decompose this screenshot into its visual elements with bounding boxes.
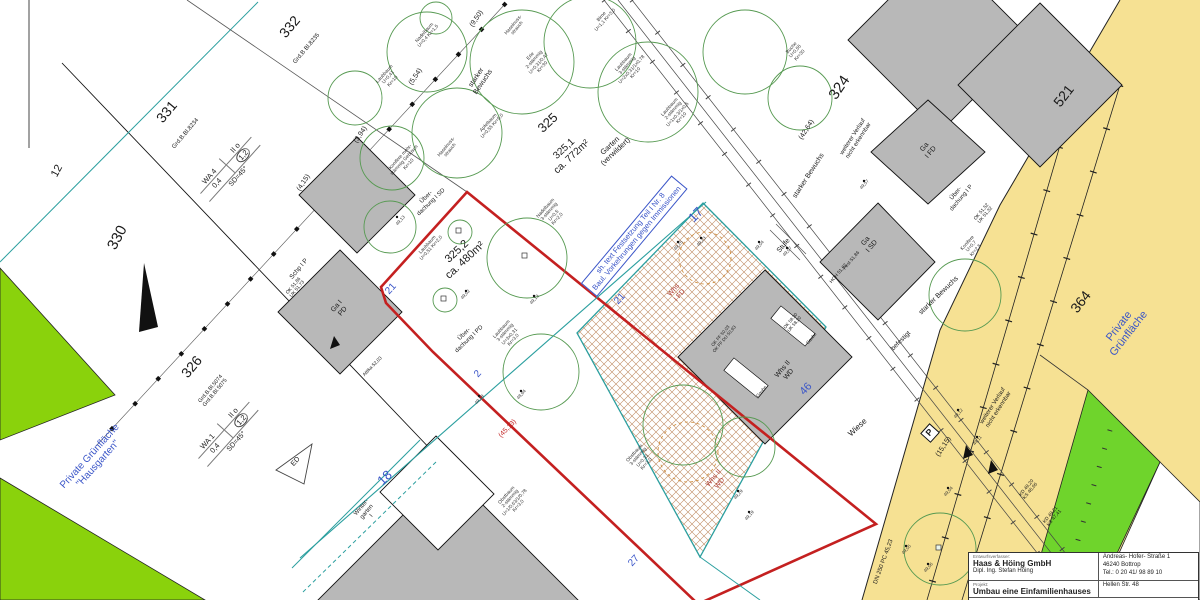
plot-number-2: 2 xyxy=(472,368,484,379)
elev-49-19-a: 49,19 xyxy=(474,394,485,406)
elev-49-19-b: 49,19 xyxy=(744,510,755,522)
dim-45-13: (45,13) xyxy=(498,418,519,439)
label-whs-2-hatch: Whs II WD xyxy=(705,468,730,493)
parcel-label-521: 521 xyxy=(1051,82,1078,110)
label-starker-bewuchs-1: starker Bewuchs xyxy=(466,64,495,96)
elev-49-23: 49,23 xyxy=(696,236,707,248)
title-block: Entwurfsverfasser: Haas & Höing GmbH Dip… xyxy=(968,552,1199,600)
designer-title: Dipl. Ing. Stefan Höing xyxy=(973,568,1094,574)
tree-label-haselnuss-2: Haselnuss- strauch xyxy=(437,136,460,161)
designer-address: Andreas- Hofer- Straße 1 46240 Bottrop T… xyxy=(1103,554,1194,577)
dim-3-94: (3,94) xyxy=(353,125,370,144)
parcel-label-332: 332 xyxy=(277,13,304,41)
label-ed: ED xyxy=(290,456,302,468)
label-ueberdachung-p: Über- dachung I P xyxy=(944,179,975,212)
label-ueberdachung-pd: Über- dachung I PD xyxy=(449,320,484,355)
label-schp-heights: OK 51,86 UK 51,73 xyxy=(285,277,306,299)
plot-number-21b: 21 xyxy=(383,281,399,297)
elev-48-94: 48,94 xyxy=(516,389,527,401)
tree-label-erle: Erle 2-stämmig U=0,31/0,47 Kr=30 xyxy=(520,45,553,79)
label-starker-bewuchs-2: starker Bewuchs xyxy=(792,152,827,200)
project-name: Umbau eine Einfamilienhauses xyxy=(973,587,1094,596)
parcel-label-331: 331 xyxy=(154,98,181,126)
dim-42-64: (42,64) xyxy=(798,119,817,142)
elev-49-11: 49,11 xyxy=(973,435,984,446)
label-ga-sd: Ga I SD xyxy=(859,234,880,254)
project-address: Hellen Str. 48 xyxy=(1103,582,1194,588)
label-befestigt: befestigt xyxy=(890,330,912,352)
label-ff-heights: OK FF 50,03 OK FF DU 50,93 xyxy=(708,322,737,354)
site-plan: 33012331Grd.B.Bl.8234332Grd.B Bl.8235326… xyxy=(0,0,1200,600)
house-number-17: 17 xyxy=(686,205,706,225)
label-ueberdachung-sd: Über- dachung I SD xyxy=(411,183,446,218)
tree-label-buche: Buche U=0,55 Kr=30 xyxy=(785,41,807,63)
label-p-sign: P xyxy=(920,423,940,443)
plot-number-27: 27 xyxy=(626,553,642,569)
label-wiese: Wiese xyxy=(847,417,869,439)
label-gaube-2: Gaube xyxy=(756,385,768,399)
elev-49-12: 49,12 xyxy=(953,408,964,420)
tree-label-apfelbaum: Apfelbaum U=0,55 Kr=5,0 xyxy=(477,110,506,140)
label-ga-pd: Ga I PD xyxy=(330,299,350,319)
elev-49-57: 49,57 xyxy=(859,179,870,191)
note-box: sh. text Festsetzung Teil I Nr. 8 Baul. … xyxy=(581,175,687,296)
label-whs-2: Whs II WD xyxy=(774,359,799,384)
parcel-label-326: 326 xyxy=(179,353,206,381)
elev-49-04-b: 49,04 xyxy=(943,486,954,498)
tree-label-birne: Birne U=1,1 Kr=3,0 xyxy=(591,5,618,33)
parcel-label-332-grdb: Grd.B Bl.8235 xyxy=(292,32,321,65)
elev-49-05: 49,05 xyxy=(901,544,912,556)
label-wintergarten: Winter- garten I xyxy=(353,498,381,526)
tree-label-obstbaum-2st: Obstbaum 2-stämmig U=1/0,63/1/0,78 Kr=3,… xyxy=(494,481,533,521)
dim-9-50: (9,50) xyxy=(469,9,486,28)
parcel-label-325: 325 xyxy=(535,110,561,135)
parcel-label-12: 12 xyxy=(49,163,65,179)
label-ueberdachung-p-heights: OK 51,52 UK 51,32 xyxy=(973,203,994,225)
elev-49-04-a: 49,04 xyxy=(754,240,765,252)
tree-label-obstbaum-3st: Obstbaum 3-stämmig U=0,31 Kr=3,0 xyxy=(626,444,657,475)
label-ga-fd: Ga I FD xyxy=(918,140,938,160)
label-dormer-heights: OK 58,30 UK 58,20 xyxy=(783,313,803,334)
label-kd-2: KD 49,21 KS 47,41 xyxy=(1043,506,1064,528)
label-private-gruenflaeche-hausgarten: Private Grünfläche "Hausgarten" xyxy=(58,422,130,498)
tree-label-haselnuss-1: Haselnuss- strauch xyxy=(504,14,527,39)
parcel-label-325-1: 325,1 ca. 772m² xyxy=(544,130,592,176)
label-starker-bewuchs-3: starker Bewuchs xyxy=(918,275,961,316)
label-private-gruenflaeche-street: Private Grünfläche xyxy=(1098,301,1150,358)
house-number-46: 46 xyxy=(797,380,814,397)
parcel-label-326-grdb: Grd.B.Bl.5074 Grd.B.Bl.5075 xyxy=(197,374,228,408)
elev-49-29: 49,29 xyxy=(733,489,744,501)
label-weiterer-verlauf-2: weiterer Verlauf nicht erkennbar xyxy=(979,387,1013,429)
plot-number-21a: 21 xyxy=(612,291,628,307)
elev-49-02: 49,02 xyxy=(460,289,471,301)
parcel-label-324: 324 xyxy=(826,73,854,103)
dim-5-54: (5,54) xyxy=(408,67,425,86)
tree-label-laubbaum-2st: Laubbaum 2-stämmig U=1x0,3/1x0,5 Kr=10 xyxy=(658,94,694,131)
tree-label-konifere-2: Konifere U=0,7 Kr=2,5 xyxy=(960,235,984,259)
label-dn-pipe: DN 250 PC 45,23 xyxy=(873,539,895,585)
elev-49-13-a: 49,13 xyxy=(395,215,406,227)
parcel-label-364: 364 xyxy=(1068,288,1095,316)
label-kd-1: KD 49,20 KS 46,66 xyxy=(1019,479,1040,501)
label-weiterer-verlauf-1: weiterer Verlauf nicht erkennbar xyxy=(839,118,873,160)
tree-label-konifere-1: Konifere mehr- stämmig Gebüsch Kr=10 xyxy=(386,141,424,180)
tree-label-nadelbaum-1: Nadelbaum U=0,4 Kr=1,5 xyxy=(414,21,441,49)
label-attika: Attika 52,03 xyxy=(362,356,383,378)
tree-label-nadelbaum-3st: Nadelbaum 3-stämmig U=0,5 Kr=2,0 xyxy=(536,198,568,230)
dim-4-15: (4,15) xyxy=(296,173,313,192)
elev-49-06: 49,06 xyxy=(923,562,934,574)
house-number-18: 18 xyxy=(375,468,395,488)
label-gaube-1: Gaube xyxy=(806,332,818,346)
label-ga-sd-hoh: HOH 51,62 xyxy=(829,263,848,285)
dim-15-15: (15,15) xyxy=(935,436,954,459)
tree-label-laubbaum-1: Laubbaum U=0,41 Kr=10 xyxy=(376,64,403,91)
parcel-label-330: 330 xyxy=(105,223,131,253)
label-whs-1: Whs I FD xyxy=(667,283,688,304)
elev-49-25: 49,25 xyxy=(673,240,684,252)
map-labels: 33012331Grd.B.Bl.8234332Grd.B Bl.8235326… xyxy=(0,0,1200,600)
parcel-label-331-grdb: Grd.B.Bl.8234 xyxy=(171,117,200,150)
tree-label-laubbaum-3st: Laubbaum 3-stämmig U=2x0,31/1x0,78 Kr=10 xyxy=(610,47,650,88)
elev-49-13-b: 49,13 xyxy=(529,294,540,306)
tree-label-laubbaum-3st-2: Laubbaum 3-stämmig U=3x0,31 Kr=3,0 xyxy=(493,320,524,351)
label-garten-verwildert: Garten (verwildert) xyxy=(594,130,632,167)
designer-name: Haas & Höing GmbH xyxy=(973,559,1094,568)
